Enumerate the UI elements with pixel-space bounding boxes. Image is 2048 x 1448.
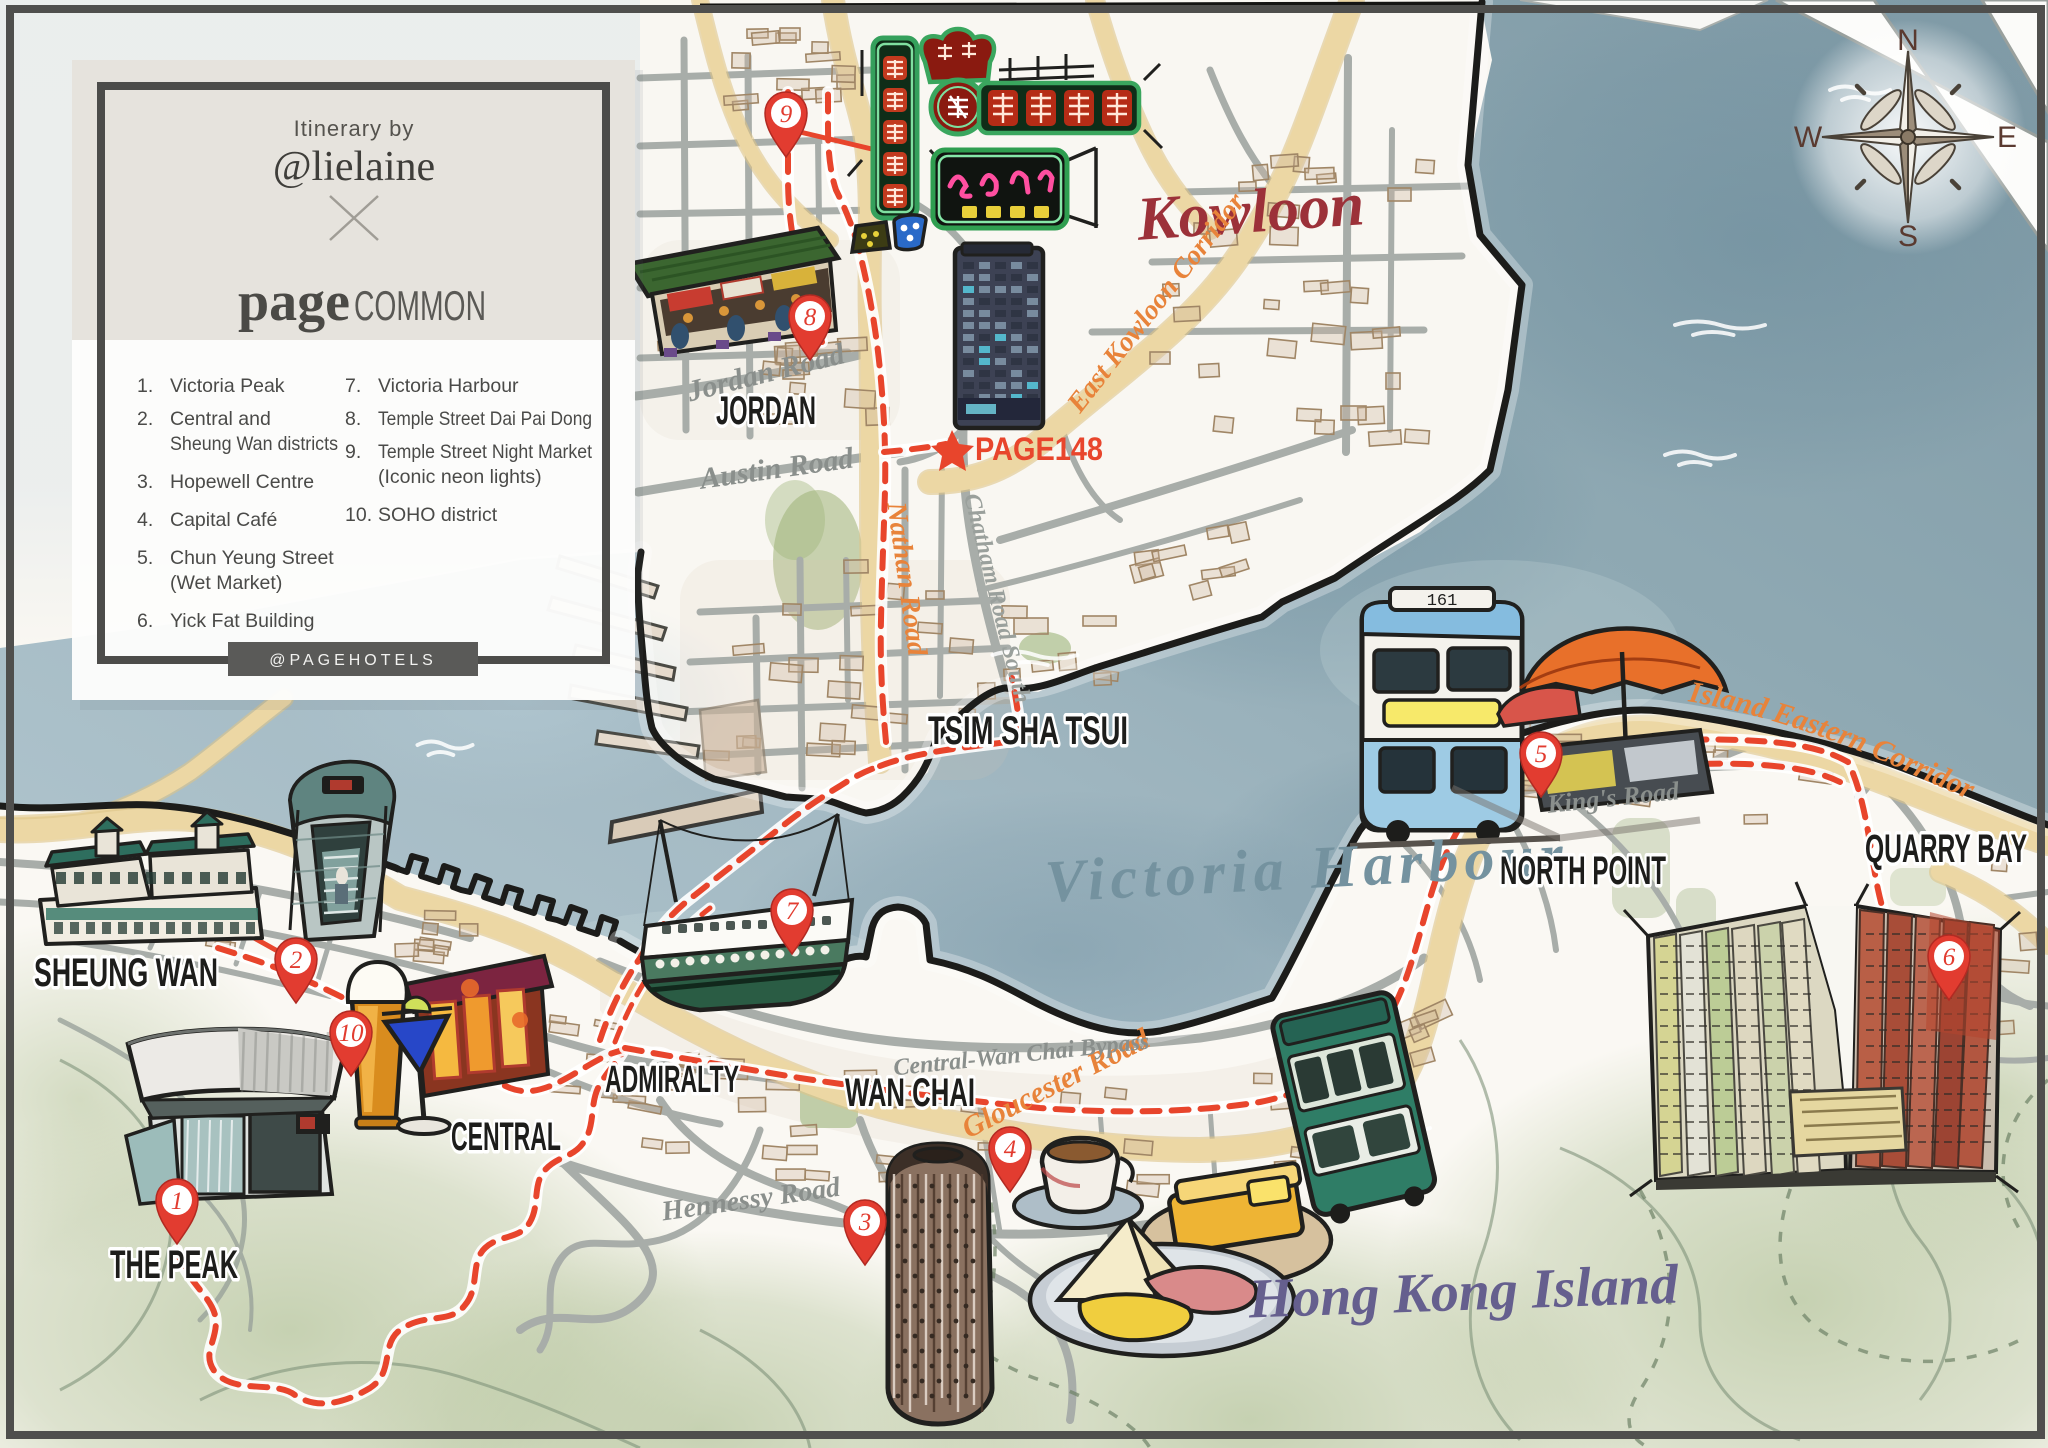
svg-text:SHEUNG WAN: SHEUNG WAN: [34, 951, 218, 995]
svg-text:S: S: [1898, 220, 1918, 253]
svg-text:8: 8: [804, 304, 817, 331]
svg-text:9.: 9.: [345, 441, 361, 463]
svg-text:QUARRY BAY: QUARRY BAY: [1865, 827, 2027, 871]
svg-text:CENTRAL: CENTRAL: [451, 1115, 561, 1159]
svg-text:COMMON: COMMON: [354, 282, 486, 329]
svg-text:4: 4: [1004, 1136, 1017, 1163]
svg-text:Sheung Wan districts: Sheung Wan districts: [170, 433, 338, 455]
svg-text:9: 9: [780, 101, 793, 128]
svg-text:Temple Street Night Market: Temple Street Night Market: [378, 441, 593, 463]
svg-text:Yick Fat Building: Yick Fat Building: [170, 610, 315, 632]
svg-text:page: page: [238, 271, 350, 333]
svg-text:7: 7: [786, 898, 800, 925]
svg-text:Chun Yeung Street: Chun Yeung Street: [170, 547, 334, 569]
svg-text:6: 6: [1943, 944, 1956, 971]
svg-text:THE PEAK: THE PEAK: [110, 1243, 238, 1287]
svg-text:NORTH POINT: NORTH POINT: [1500, 849, 1666, 893]
svg-text:3: 3: [858, 1209, 872, 1236]
svg-text:2.: 2.: [137, 408, 153, 430]
svg-text:E: E: [1997, 121, 2017, 154]
svg-text:(Wet Market): (Wet Market): [170, 572, 282, 594]
svg-text:2: 2: [290, 947, 303, 974]
svg-text:PAGE148: PAGE148: [975, 431, 1103, 467]
svg-text:1.: 1.: [137, 375, 153, 397]
svg-text:@lielaine: @lielaine: [273, 144, 435, 190]
svg-text:1: 1: [171, 1188, 184, 1215]
svg-text:5.: 5.: [137, 547, 153, 569]
svg-text:161: 161: [1427, 592, 1458, 611]
svg-text:TSIM SHA TSUI: TSIM SHA TSUI: [928, 709, 1128, 753]
svg-text:4.: 4.: [137, 509, 153, 531]
svg-text:SOHO district: SOHO district: [378, 504, 498, 526]
svg-text:3.: 3.: [137, 471, 153, 493]
svg-text:10.: 10.: [345, 504, 372, 526]
svg-text:Victoria Peak: Victoria Peak: [170, 375, 285, 397]
svg-text:Itinerary by: Itinerary by: [294, 116, 415, 141]
svg-text:8.: 8.: [345, 408, 361, 430]
svg-text:(Iconic neon lights): (Iconic neon lights): [378, 466, 542, 488]
svg-text:Capital Café: Capital Café: [170, 509, 277, 531]
svg-text:N: N: [1897, 24, 1919, 57]
svg-text:Victoria Harbour: Victoria Harbour: [378, 375, 519, 397]
svg-text:@PAGEHOTELS: @PAGEHOTELS: [269, 652, 437, 669]
svg-text:Central and: Central and: [170, 408, 271, 430]
svg-text:Hopewell Centre: Hopewell Centre: [170, 471, 314, 493]
svg-text:5: 5: [1535, 741, 1548, 768]
svg-text:6.: 6.: [137, 610, 153, 632]
svg-text:7.: 7.: [345, 375, 361, 397]
svg-text:W: W: [1794, 121, 1823, 154]
svg-text:10: 10: [339, 1020, 365, 1047]
svg-text:ADMIRALTY: ADMIRALTY: [605, 1059, 739, 1101]
svg-text:Temple Street Dai Pai Dong: Temple Street Dai Pai Dong: [378, 408, 592, 430]
